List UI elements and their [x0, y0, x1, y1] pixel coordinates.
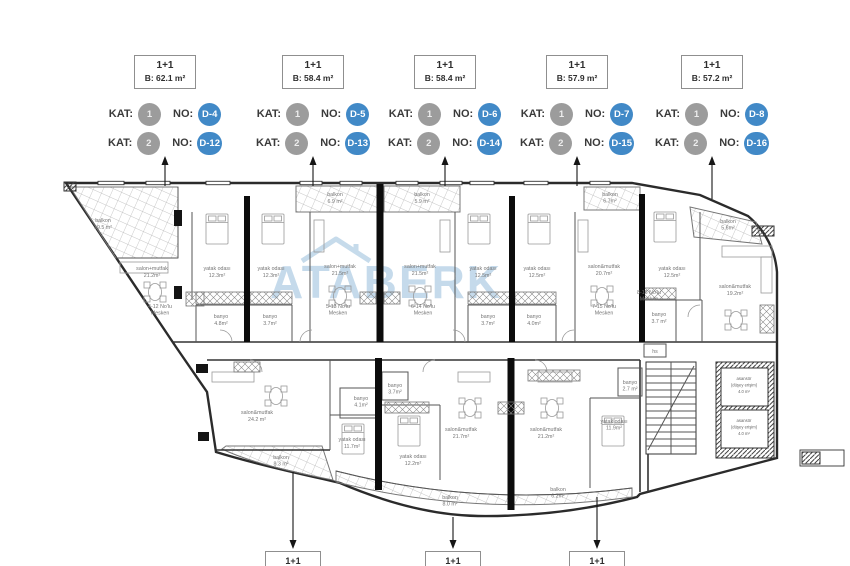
unit-annotation-4: 1+1 B: 57.9 m² KAT: 1 NO: D-7 KAT: 2 NO:… [502, 55, 652, 155]
unit-number-badge: D-12 [197, 132, 222, 155]
unit-type: 1+1 [293, 60, 334, 73]
svg-text:21.5m²: 21.5m² [412, 271, 429, 277]
kat-label: KAT: [521, 108, 545, 120]
svg-text:(düşey erişim): (düşey erişim) [731, 425, 758, 430]
unit-type-box: 1+1 B: 57.2 m² [681, 55, 744, 89]
room-label: salon&mutfak [588, 264, 620, 270]
bottom-unit-type-box-2: 1+1 [425, 551, 481, 566]
room-label: yatak odası [658, 266, 685, 272]
bottom-unit-type-box-1: 1+1 [265, 551, 321, 566]
svg-text:Mesken: Mesken [414, 311, 433, 317]
kat-label: KAT: [257, 108, 281, 120]
svg-text:8.3 m²: 8.3 m² [273, 462, 288, 468]
room-label: banyo [623, 380, 637, 386]
kat-row: KAT: 1 NO: D-8 [656, 103, 768, 126]
floor-badge: 2 [137, 132, 160, 155]
room-label: salon+mutfak [324, 264, 356, 270]
elevator-label: asansör [737, 376, 753, 381]
room-label: balkon [550, 487, 566, 493]
floor-badge: 1 [418, 103, 441, 126]
room-label: yatak odası [523, 266, 550, 272]
room-label: banyo [263, 314, 277, 320]
unit-type: 1+1 [285, 556, 300, 566]
unit-annotation-2: 1+1 B: 58.4 m² KAT: 1 NO: D-5 KAT: 2 NO:… [238, 55, 388, 155]
unit-area: B: 57.2 m² [692, 73, 733, 84]
svg-text:5.6m²: 5.6m² [721, 226, 735, 232]
svg-text:4.0 m²: 4.0 m² [738, 389, 750, 394]
kat-row: KAT: 2 NO: D-13 [256, 132, 370, 155]
room-label: yatak odası [600, 419, 627, 425]
svg-text:3.7m²: 3.7m² [481, 321, 495, 327]
unit-type-box: 1+1 B: 58.4 m² [414, 55, 477, 89]
balcony-left [70, 187, 178, 258]
kat-label: KAT: [655, 137, 679, 149]
svg-text:21.7m²: 21.7m² [453, 434, 470, 440]
kat-row: KAT: 1 NO: D-5 [257, 103, 369, 126]
svg-text:4.1m²: 4.1m² [354, 403, 368, 409]
room-label: banyo [388, 383, 402, 389]
mesken-label: 5-13 No'lu [326, 304, 350, 310]
no-label: NO: [172, 137, 192, 149]
no-label: NO: [173, 108, 193, 120]
room-label: banyo [652, 312, 666, 318]
kat-label: KAT: [109, 108, 133, 120]
room-label: yatak odası [257, 266, 284, 272]
room-label: salon&mutfak [530, 427, 562, 433]
svg-text:21.5m²: 21.5m² [332, 271, 349, 277]
floor-badge: 1 [138, 103, 161, 126]
unit-number-badge: D-8 [745, 103, 768, 126]
floor-badge: 1 [685, 103, 708, 126]
unit-area: B: 57.9 m² [557, 73, 598, 84]
floor-badge: 1 [286, 103, 309, 126]
room-label: balkon [327, 192, 343, 198]
svg-text:12.3m²: 12.3m² [209, 273, 226, 279]
mesken-label: 7-15 No'lu [592, 304, 616, 310]
bottom-unit-type-box-3: 1+1 [569, 551, 625, 566]
unit-type: 1+1 [692, 60, 733, 73]
svg-text:12.3m²: 12.3m² [263, 273, 280, 279]
floor-badge: 2 [684, 132, 707, 155]
unit-area: B: 58.4 m² [293, 73, 334, 84]
room-label: banyo [527, 314, 541, 320]
kat-label: KAT: [656, 108, 680, 120]
room-label: salon+mutfak [136, 266, 168, 272]
unit-annotation-1: 1+1 B: 62.1 m² KAT: 1 NO: D-4 KAT: 2 NO:… [90, 55, 240, 155]
kat-row: KAT: 2 NO: D-15 [520, 132, 634, 155]
kat-label: KAT: [389, 108, 413, 120]
room-label: salon&mutfak [719, 284, 751, 290]
svg-text:6.2m²: 6.2m² [551, 494, 565, 500]
unit-number-badge: D-7 [610, 103, 633, 126]
svg-text:12.2m²: 12.2m² [405, 461, 422, 467]
kat-row: KAT: 2 NO: D-16 [655, 132, 769, 155]
unit-annotation-5: 1+1 B: 57.2 m² KAT: 1 NO: D-8 KAT: 2 NO:… [637, 55, 787, 155]
unit-type: 1+1 [425, 60, 466, 73]
svg-text:12.5m²: 12.5m² [664, 273, 681, 279]
svg-text:3.7m²: 3.7m² [263, 321, 277, 327]
unit-type-box: 1+1 B: 62.1 m² [134, 55, 197, 89]
svg-text:12.5m²: 12.5m² [529, 273, 546, 279]
svg-text:Mesken: Mesken [329, 311, 348, 317]
kat-label: KAT: [256, 137, 280, 149]
kat-row: KAT: 1 NO: D-4 [109, 103, 221, 126]
unit-number-badge: D-15 [609, 132, 634, 155]
unit-number-badge: D-4 [198, 103, 221, 126]
room-label: salon&mutfak [241, 410, 273, 416]
svg-text:Mesken: Mesken [595, 311, 614, 317]
room-label: banyo [481, 314, 495, 320]
kat-row: KAT: 2 NO: D-12 [108, 132, 222, 155]
room-label: balkon [95, 218, 111, 224]
svg-text:2.7 m²: 2.7 m² [622, 387, 637, 393]
svg-text:4.8m²: 4.8m² [214, 321, 228, 327]
no-label: NO: [719, 137, 739, 149]
mesken-label: 6-14 No'lu [411, 304, 435, 310]
unit-type: 1+1 [145, 60, 186, 73]
kat-label: KAT: [388, 137, 412, 149]
mesken-label: 4-12 No'lu [148, 304, 172, 310]
svg-text:11.9m²: 11.9m² [606, 426, 622, 432]
unit-number-badge: D-13 [345, 132, 370, 155]
floor-badge: 2 [285, 132, 308, 155]
room-label: salon+mutfak [404, 264, 436, 270]
svg-text:(düşey erişim): (düşey erişim) [731, 383, 758, 388]
unit-number-badge: D-14 [477, 132, 502, 155]
svg-text:4.0 m²: 4.0 m² [738, 431, 750, 436]
no-label: NO: [321, 108, 341, 120]
kat-label: KAT: [108, 137, 132, 149]
room-label: balkon [720, 219, 736, 225]
unit-number-badge: D-6 [478, 103, 501, 126]
unit-type-box: 1+1 B: 58.4 m² [282, 55, 345, 89]
unit-type: 1+1 [557, 60, 598, 73]
unit-number-badge: D-5 [346, 103, 369, 126]
svg-text:6.9 m²: 6.9 m² [327, 199, 342, 205]
no-label: NO: [585, 108, 605, 120]
svg-text:21.2m²: 21.2m² [538, 434, 555, 440]
floor-plan-page: ATABERK [0, 0, 850, 566]
kat-row: KAT: 1 NO: D-6 [389, 103, 501, 126]
no-label: NO: [320, 137, 340, 149]
svg-text:19.5 m²: 19.5 m² [94, 225, 112, 231]
svg-text:Mesken: Mesken [151, 311, 170, 317]
unit-area: B: 58.4 m² [425, 73, 466, 84]
svg-text:3.7 m²: 3.7 m² [651, 319, 666, 325]
room-label: yatak odası [469, 266, 496, 272]
unit-number-badge: D-16 [744, 132, 769, 155]
unit-area: B: 62.1 m² [145, 73, 186, 84]
svg-text:4.0m²: 4.0m² [527, 321, 541, 327]
unit-annotation-3: 1+1 B: 58.4 m² KAT: 1 NO: D-6 KAT: 2 NO:… [370, 55, 520, 155]
room-label: yatak odası [338, 437, 365, 443]
svg-text:3.7m²: 3.7m² [388, 390, 402, 396]
no-label: NO: [584, 137, 604, 149]
svg-text:5.9 m²: 5.9 m² [414, 199, 429, 205]
svg-text:8.0 m²: 8.0 m² [442, 502, 457, 508]
room-label: balkon [273, 455, 289, 461]
unit-type: 1+1 [589, 556, 604, 566]
svg-text:19.2m²: 19.2m² [727, 291, 744, 297]
stairs [646, 362, 696, 454]
room-label: yatak odası [203, 266, 230, 272]
room-label: banyo [214, 314, 228, 320]
room-label: balkon [602, 192, 618, 198]
no-label: NO: [453, 108, 473, 120]
kat-row: KAT: 1 NO: D-7 [521, 103, 633, 126]
kat-label: KAT: [520, 137, 544, 149]
svg-text:20.7m²: 20.7m² [596, 271, 613, 277]
svg-text:24.2 m²: 24.2 m² [248, 417, 266, 423]
no-label: NO: [720, 108, 740, 120]
unit-type: 1+1 [445, 556, 460, 566]
room-label: hs [652, 349, 658, 355]
svg-text:6.7m²: 6.7m² [603, 199, 617, 205]
elevator-shaft: asansör (düşey erişim) 4.0 m² asansör (d… [716, 362, 774, 458]
room-label: balkon [414, 192, 430, 198]
elevator-label: asansör [737, 418, 753, 423]
room-label: balkon [442, 495, 458, 501]
room-label: banyo [354, 396, 368, 402]
mesken-label: 8-16 No'lu [637, 290, 661, 296]
floor-badge: 2 [417, 132, 440, 155]
svg-text:12.5m²: 12.5m² [475, 273, 492, 279]
floor-badge: 1 [550, 103, 573, 126]
svg-text:11.7m²: 11.7m² [344, 444, 360, 450]
unit-type-box: 1+1 B: 57.9 m² [546, 55, 609, 89]
room-label: salon&mutfak [445, 427, 477, 433]
floor-badge: 2 [549, 132, 572, 155]
svg-text:Mesken: Mesken [640, 297, 659, 303]
svg-text:21.2m²: 21.2m² [144, 273, 161, 279]
kat-row: KAT: 2 NO: D-14 [388, 132, 502, 155]
room-label: yatak odası [399, 454, 426, 460]
no-label: NO: [452, 137, 472, 149]
